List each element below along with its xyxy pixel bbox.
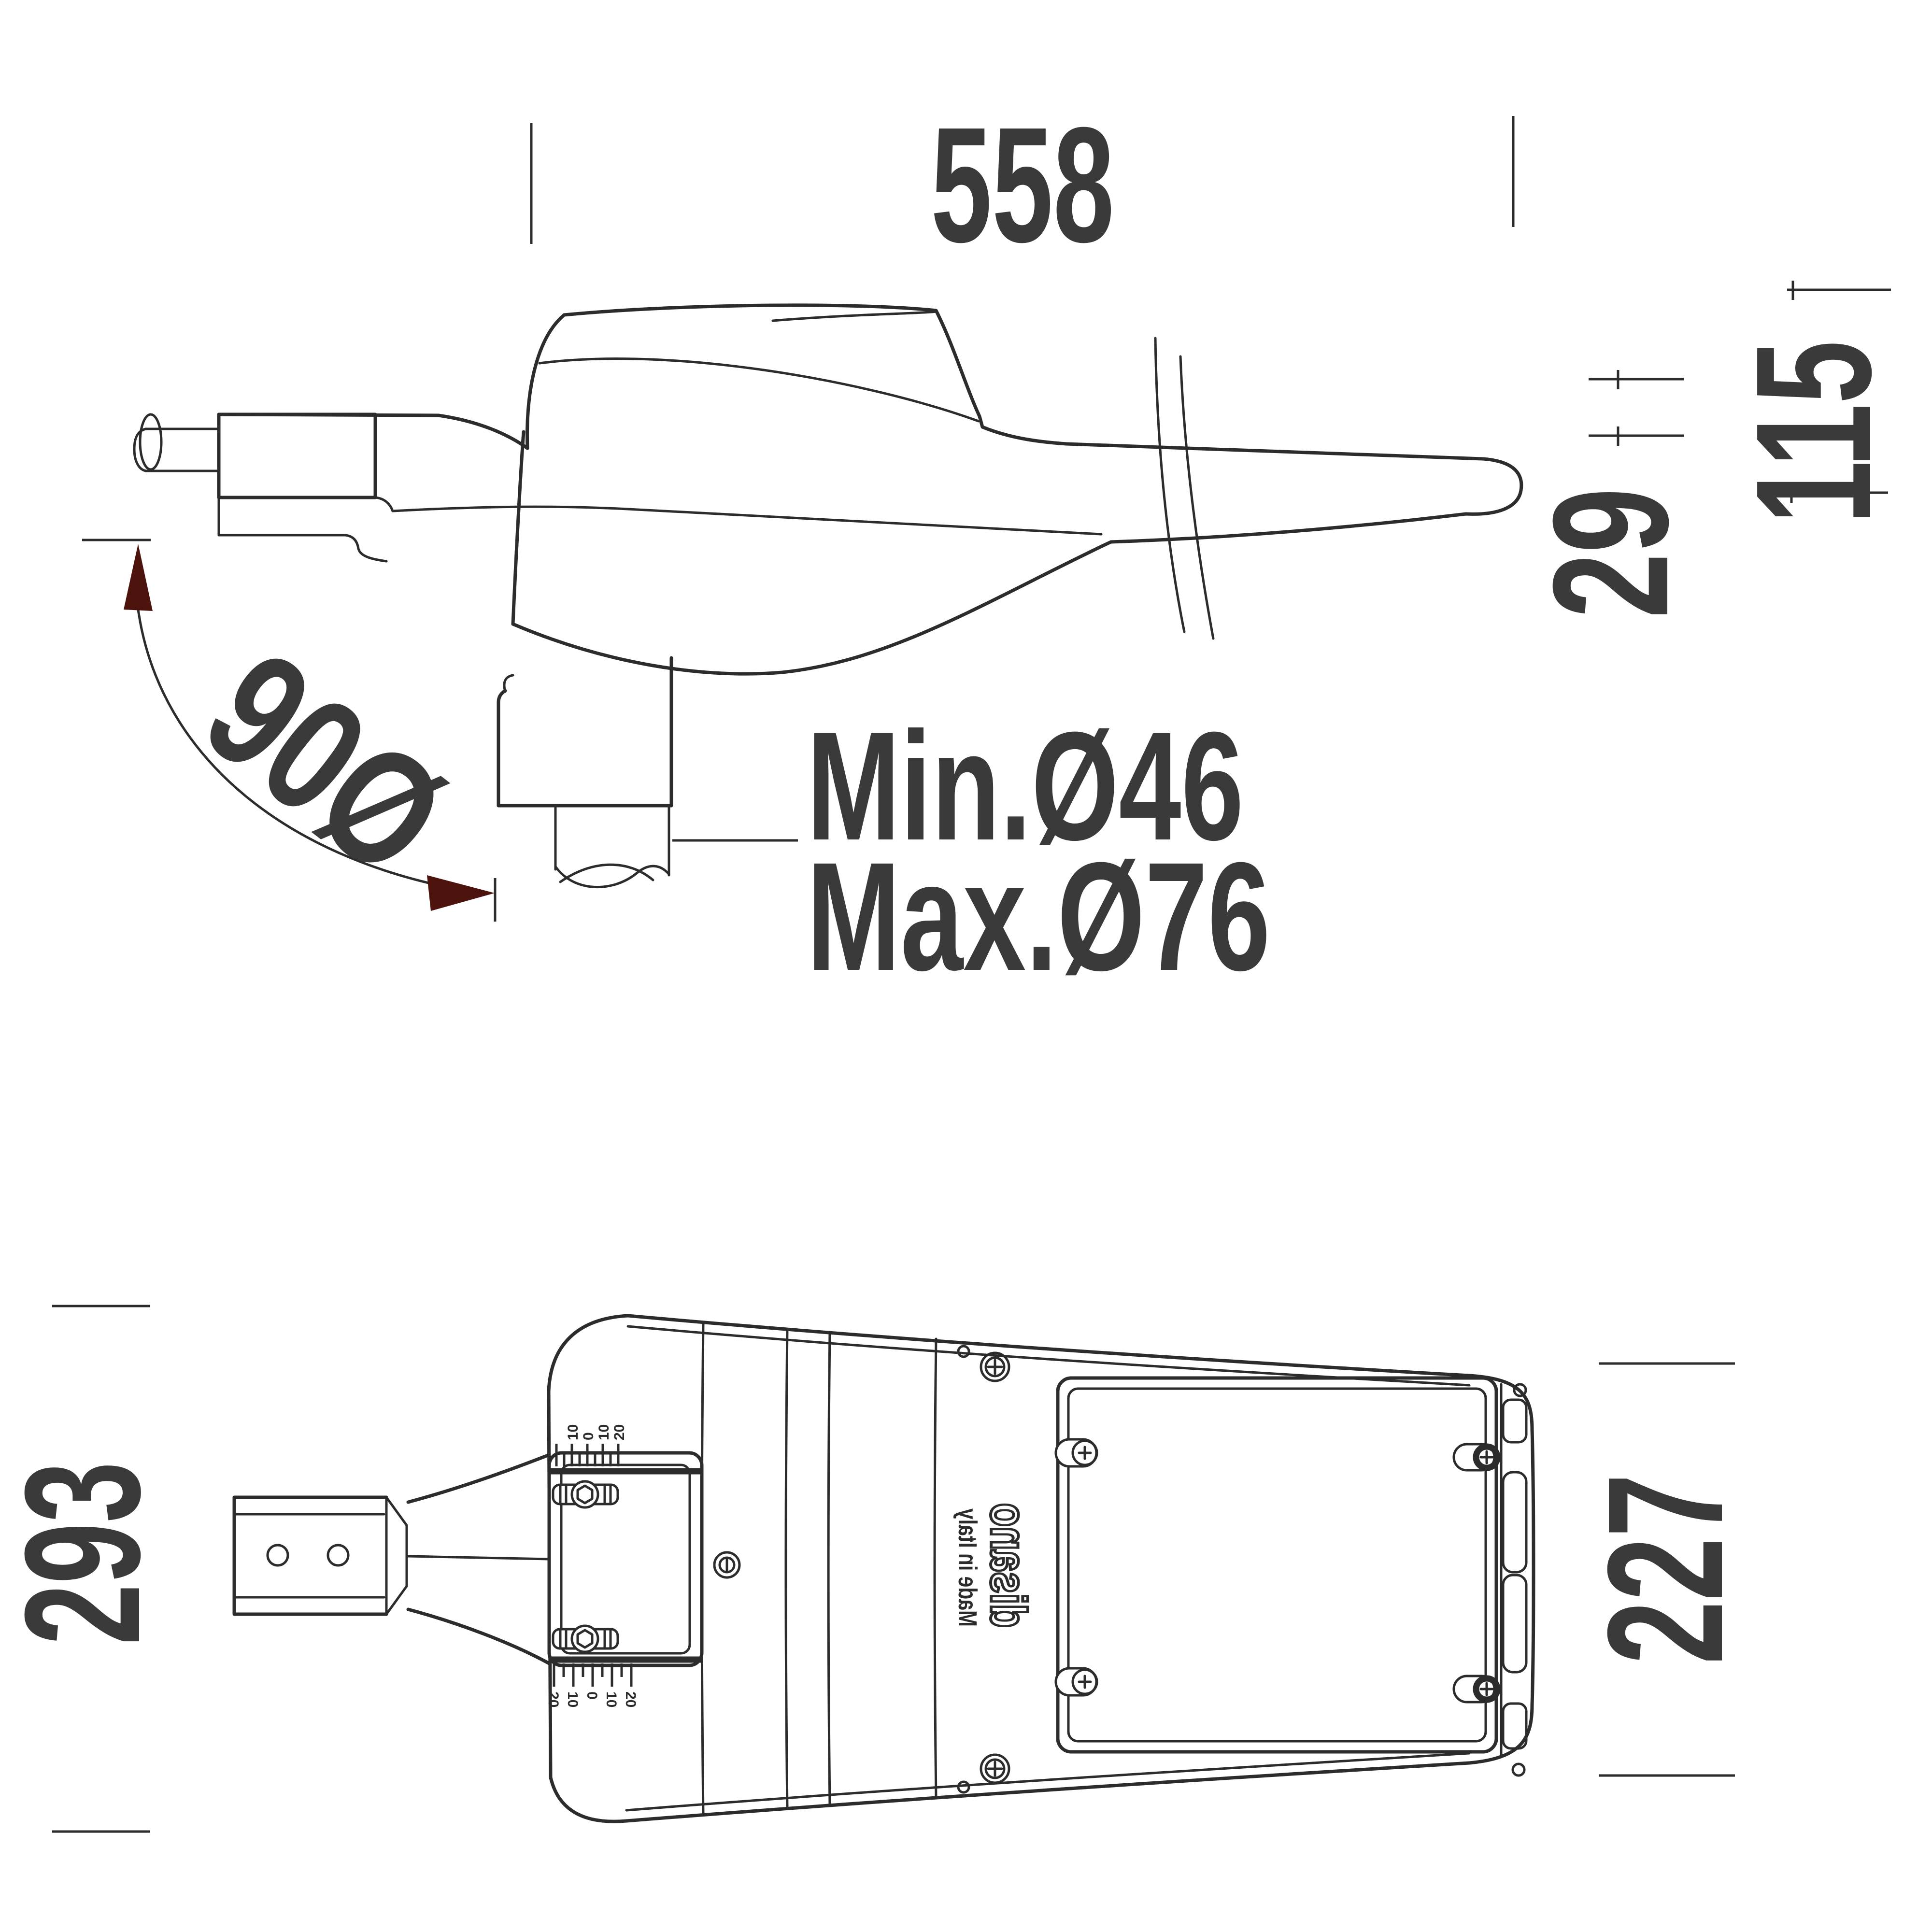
tilt-scale-top-label-2: 10 (596, 1424, 612, 1440)
neck-seam-left (1155, 338, 1184, 632)
socket-bottom-curve (555, 866, 669, 887)
dim-227: 227 (1574, 1364, 1757, 1776)
body-bottom-inner-line (626, 1753, 1469, 1810)
slot-screw-left-top (1056, 1439, 1097, 1466)
arm-shroud-midline (408, 1556, 549, 1559)
slot-screw-right-bottom (1454, 1676, 1497, 1702)
tilt-scale-bottom-label-2: 0 (584, 1691, 600, 1700)
arm-shroud-top (408, 1455, 549, 1502)
clamp-bolt-top (553, 1481, 618, 1507)
rim-tab-3 (1503, 1575, 1526, 1672)
arm-hole-1 (268, 1545, 288, 1565)
tilt-scale-bottom-label-4: 20 (623, 1691, 639, 1707)
angle-annotation: 90Ø (82, 540, 495, 922)
tilt-scale-bottom: 20 10 0 10 20 (545, 1663, 639, 1707)
rim-tab-2 (1503, 1472, 1526, 1572)
body-seam-2 (786, 1329, 787, 1809)
phillips-screw-top (958, 1346, 1009, 1381)
made-in-italy-label: Made in Italy (953, 1508, 982, 1627)
door-panel-inner (1068, 1389, 1486, 1741)
rim-hole-bottom (1513, 1764, 1524, 1776)
bottom-view: disano Made in Italy (0, 1306, 1757, 1832)
pole-diameter-max-label: Max.Ø76 (807, 830, 1270, 1003)
tilt-scale-bottom-label-3: 10 (603, 1691, 619, 1707)
angle-label: 90Ø (174, 617, 477, 910)
body-top-line (219, 414, 527, 448)
phillips-screw-bottom (958, 1755, 1009, 1792)
tilt-scale-bottom-label-1: 10 (565, 1691, 581, 1707)
phillips-screw-bottom-cross-icon (988, 1762, 1002, 1776)
spigot-bracket (219, 414, 375, 497)
spigot-shelf (219, 497, 386, 561)
body-seam-3 (828, 1332, 830, 1805)
cap-seam (540, 359, 979, 421)
door-panel-outer (1058, 1378, 1496, 1752)
side-view: 90Ø Min.Ø46 Max.Ø76 558 115 29 (82, 93, 1905, 1003)
dim-115-label: 115 (1722, 341, 1905, 524)
arm-shroud-bottom (408, 1609, 549, 1663)
clamp-knuckle (504, 675, 513, 692)
dim-293: 293 (0, 1306, 174, 1832)
dim-29: 29 (1519, 370, 1703, 618)
dim-293-label: 293 (0, 1462, 174, 1645)
slot-screw-right-top (1454, 1444, 1497, 1470)
tilt-scale-top-label-0: 10 (565, 1424, 581, 1440)
angle-arrow-right-icon (427, 875, 495, 911)
tilt-scale-top-label-3: 20 (611, 1424, 627, 1440)
neck-seam-right (1180, 356, 1213, 639)
dim-227-label: 227 (1574, 1474, 1757, 1664)
clamp-bolt-bottom (553, 1626, 618, 1652)
slot-screw-left-bottom (1056, 1668, 1097, 1695)
pole-end-cap (140, 414, 161, 469)
body-seam-line (375, 497, 1101, 534)
dim-115: 115 (1722, 281, 1905, 524)
socket-swirl (560, 865, 653, 882)
arm-hole-2 (328, 1545, 348, 1565)
pilot-hole-bottom (958, 1782, 969, 1792)
tilt-scale-bottom-label-0: 20 (545, 1691, 561, 1707)
mounting-arm (234, 1455, 549, 1663)
cap-lip (773, 312, 937, 321)
dim-558: 558 (531, 93, 1513, 277)
tilt-bracket (549, 1453, 702, 1665)
dim-29-label: 29 (1519, 488, 1703, 618)
technical-drawing: 90Ø Min.Ø46 Max.Ø76 558 115 29 (0, 0, 1932, 1932)
adjuster-knob (714, 1552, 739, 1577)
brand-logo: disano (980, 1503, 1037, 1628)
rim-tab-1 (1503, 1400, 1526, 1442)
arm-end-chamfer (386, 1497, 407, 1614)
body-seam-4 (935, 1339, 936, 1798)
pilot-hole-top (958, 1346, 969, 1357)
phillips-screw-top-cross-icon (988, 1360, 1002, 1374)
dim-558-label: 558 (931, 93, 1114, 277)
angle-arrow-up-icon (124, 544, 153, 611)
tilt-scale-top-label-1: 0 (581, 1432, 597, 1440)
clamp-outline (498, 658, 671, 806)
